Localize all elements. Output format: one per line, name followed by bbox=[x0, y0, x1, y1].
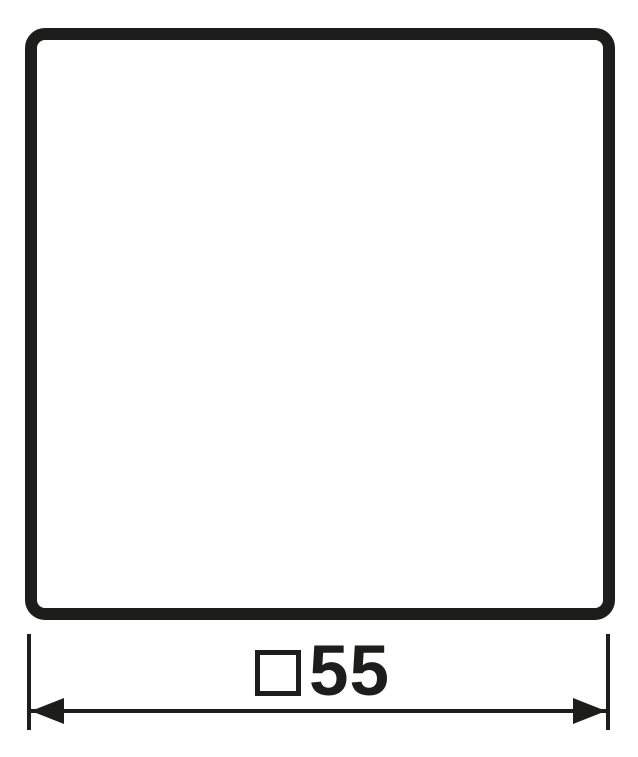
drawing-canvas: 55 bbox=[0, 0, 638, 757]
arrowhead-left-icon bbox=[31, 698, 64, 724]
cover-plate-outline bbox=[25, 28, 615, 620]
square-symbol-icon bbox=[255, 650, 301, 696]
dimension-label: 55 bbox=[255, 645, 390, 701]
dimension-extension-line-right bbox=[606, 634, 610, 730]
dimension-value: 55 bbox=[309, 636, 390, 707]
arrowhead-right-icon bbox=[573, 698, 606, 724]
